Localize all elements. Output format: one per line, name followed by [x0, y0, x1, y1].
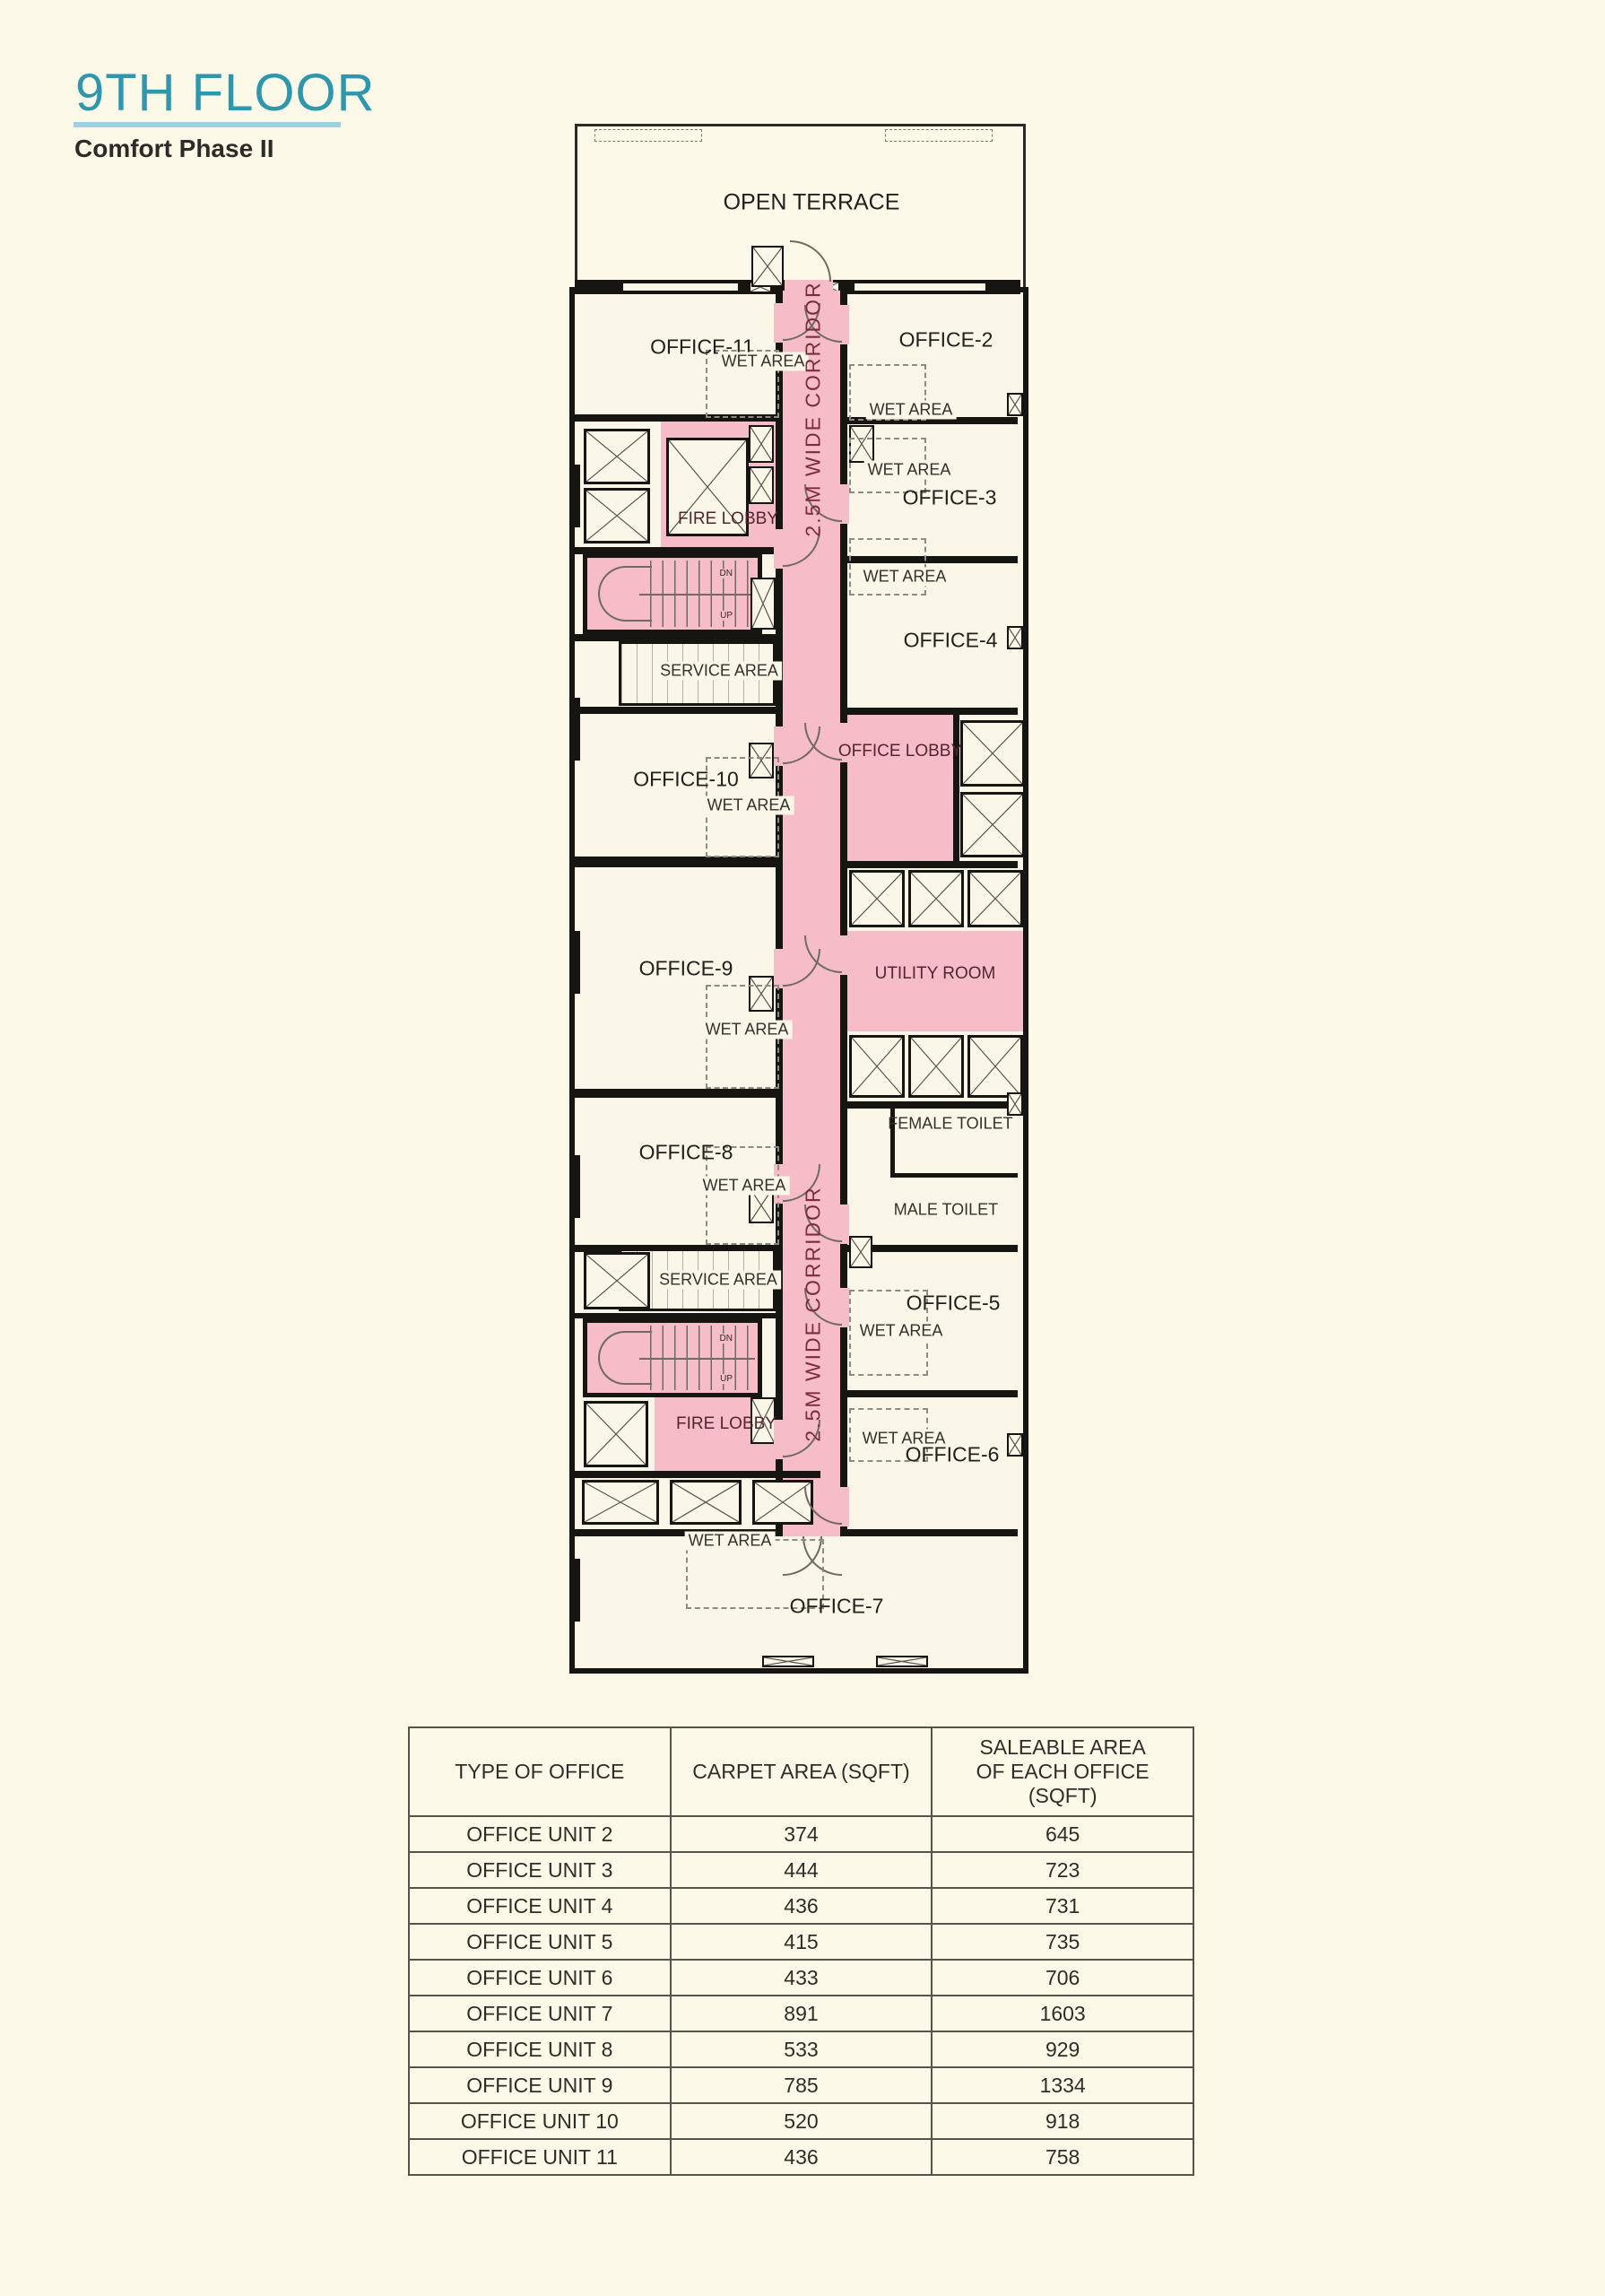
room-label-office-4: OFFICE-4 — [904, 629, 998, 653]
cell-type: OFFICE UNIT 4 — [409, 1888, 671, 1924]
lift-shaft — [849, 870, 905, 927]
lift-shaft — [584, 429, 650, 484]
lift-shaft — [908, 1035, 964, 1098]
shaft-box — [762, 1656, 814, 1667]
shaft-box — [749, 425, 774, 463]
stair-up-label: UP — [718, 611, 734, 621]
shaft-box — [849, 1236, 872, 1268]
page-title: 9TH FLOOR — [75, 63, 376, 123]
table-row: OFFICE UNIT 5 415 735 — [409, 1924, 1193, 1960]
staircase-2: DN UP — [583, 1318, 762, 1397]
stair-dn-label: DN — [718, 1334, 734, 1344]
cell-type: OFFICE UNIT 5 — [409, 1924, 671, 1960]
cell-carpet: 520 — [671, 2103, 933, 2139]
cell-saleable: 731 — [932, 1888, 1193, 1924]
cell-carpet: 436 — [671, 1888, 933, 1924]
lift-shaft — [584, 488, 650, 544]
cell-type: OFFICE UNIT 3 — [409, 1852, 671, 1888]
room-label-office-3: OFFICE-3 — [903, 486, 997, 510]
room-label-office-5: OFFICE-5 — [907, 1291, 1001, 1316]
col-header-type: TYPE OF OFFICE — [409, 1727, 671, 1816]
stair-divider — [639, 1358, 755, 1360]
cell-carpet: 785 — [671, 2067, 933, 2103]
room-label-office-10: OFFICE-10 — [633, 768, 739, 792]
lift-shaft — [584, 1252, 650, 1309]
corridor-label-top: 2.5M WIDE CORRIDOR — [802, 281, 826, 536]
wall — [840, 861, 1018, 868]
wet-area-label: WET AREA — [685, 1532, 776, 1551]
corridor-wall-left — [776, 287, 783, 1536]
wall-pier — [569, 465, 580, 527]
wall — [840, 1101, 1018, 1109]
room-label-office-8: OFFICE-8 — [639, 1141, 733, 1165]
wall — [840, 708, 1018, 715]
wall-pier — [569, 698, 580, 761]
wall — [953, 715, 959, 861]
wall — [890, 1173, 1018, 1178]
cell-carpet: 436 — [671, 2139, 933, 2175]
shaft-box — [749, 466, 774, 504]
cell-saleable: 1603 — [932, 1996, 1193, 2031]
shaft-box — [876, 1656, 928, 1667]
lift-shaft — [582, 1480, 659, 1525]
table-header-row: TYPE OF OFFICE CARPET AREA (SQFT) SALEAB… — [409, 1727, 1193, 1816]
col-header-carpet: CARPET AREA (SQFT) — [671, 1727, 933, 1816]
wet-area-label: WET AREA — [866, 401, 957, 420]
page-subtitle: Comfort Phase II — [74, 135, 273, 163]
wall-pier — [569, 931, 580, 994]
cell-carpet: 444 — [671, 1852, 933, 1888]
room-label-office-7: OFFICE-7 — [790, 1595, 884, 1619]
table-row: OFFICE UNIT 11 436 758 — [409, 2139, 1193, 2175]
shaft-box — [750, 578, 776, 630]
cell-saleable: 758 — [932, 2139, 1193, 2175]
lift-shaft — [670, 1480, 742, 1525]
shaft-box — [1007, 393, 1023, 416]
page: { "header": { "title": "9TH FLOOR", "sub… — [0, 0, 1605, 2296]
wall — [569, 1471, 820, 1478]
room-label-office-2: OFFICE-2 — [899, 328, 993, 352]
room-label-service-area-1: SERVICE AREA — [656, 662, 782, 681]
cell-carpet: 533 — [671, 2031, 933, 2067]
wall — [569, 1089, 776, 1098]
wall-pier — [569, 1559, 580, 1622]
table-row: OFFICE UNIT 3 444 723 — [409, 1852, 1193, 1888]
cell-type: OFFICE UNIT 11 — [409, 2139, 671, 2175]
lift-shaft — [584, 1401, 648, 1467]
table-row: OFFICE UNIT 9 785 1334 — [409, 2067, 1193, 2103]
wet-area-label: WET AREA — [718, 352, 809, 371]
room-label-fire-lobby-2: FIRE LOBBY — [676, 1414, 776, 1434]
cell-saleable: 918 — [932, 2103, 1193, 2139]
table-row: OFFICE UNIT 4 436 731 — [409, 1888, 1193, 1924]
table-row: OFFICE UNIT 2 374 645 — [409, 1816, 1193, 1852]
room-label-open-terrace: OPEN TERRACE — [724, 190, 900, 216]
cell-carpet: 374 — [671, 1816, 933, 1852]
table-row: OFFICE UNIT 6 433 706 — [409, 1960, 1193, 1996]
room-label-office-6: OFFICE-6 — [906, 1443, 1000, 1467]
area-table: TYPE OF OFFICE CARPET AREA (SQFT) SALEAB… — [408, 1726, 1194, 2176]
cell-type: OFFICE UNIT 10 — [409, 2103, 671, 2139]
stair-up-label: UP — [718, 1374, 734, 1384]
cell-saleable: 735 — [932, 1924, 1193, 1960]
window-slot — [855, 283, 985, 291]
cell-type: OFFICE UNIT 8 — [409, 2031, 671, 2067]
cell-saleable: 1334 — [932, 2067, 1193, 2103]
staircase-1: DN UP — [583, 553, 762, 634]
cell-type: OFFICE UNIT 9 — [409, 2067, 671, 2103]
cell-saleable: 645 — [932, 1816, 1193, 1852]
wet-area-label: WET AREA — [699, 1177, 790, 1196]
room-label-male-toilet: MALE TOILET — [894, 1201, 998, 1220]
cell-saleable: 706 — [932, 1960, 1193, 1996]
title-underline — [74, 122, 341, 127]
cell-saleable: 723 — [932, 1852, 1193, 1888]
planter-left — [594, 129, 702, 142]
room-label-service-area-2: SERVICE AREA — [655, 1271, 781, 1290]
room-label-female-toilet: FEMALE TOILET — [888, 1115, 1012, 1134]
lift-shaft — [967, 1035, 1023, 1098]
wall — [569, 634, 776, 641]
wall — [840, 1390, 1018, 1397]
cell-carpet: 891 — [671, 1996, 933, 2031]
window-slot — [623, 283, 738, 291]
corridor-wall-right — [840, 287, 847, 1536]
stair-dn-label: DN — [718, 569, 734, 578]
cell-type: OFFICE UNIT 6 — [409, 1960, 671, 1996]
floor-plan: DN UP DN UP — [569, 124, 1028, 1670]
col-header-saleable: SALEABLE AREA OF EACH OFFICE (SQFT) — [932, 1727, 1193, 1816]
room-label-fire-lobby-1: FIRE LOBBY — [678, 509, 778, 529]
room-label-utility-room: UTILITY ROOM — [875, 964, 996, 984]
wet-area-label: WET AREA — [856, 1322, 947, 1341]
wet-area-label: WET AREA — [704, 796, 794, 815]
wet-area-label: WET AREA — [702, 1021, 793, 1039]
cell-type: OFFICE UNIT 2 — [409, 1816, 671, 1852]
table-row: OFFICE UNIT 8 533 929 — [409, 2031, 1193, 2067]
planter-right — [885, 129, 993, 142]
office-lobby — [847, 715, 953, 861]
shaft-box — [1007, 626, 1023, 649]
wet-area-label: WET AREA — [860, 568, 950, 587]
cell-carpet: 433 — [671, 1960, 933, 1996]
wall — [840, 1529, 1018, 1536]
corridor-label-bottom: 2.5M WIDE CORRIDOR — [802, 1186, 826, 1441]
cell-carpet: 415 — [671, 1924, 933, 1960]
lift-shaft — [960, 792, 1025, 857]
wall — [569, 857, 776, 867]
table-row: OFFICE UNIT 7 891 1603 — [409, 1996, 1193, 2031]
shaft-box — [751, 246, 784, 287]
lift-shaft — [960, 720, 1025, 787]
cell-saleable: 929 — [932, 2031, 1193, 2067]
table-row: OFFICE UNIT 10 520 918 — [409, 2103, 1193, 2139]
stair-divider — [639, 594, 755, 596]
shaft-box — [1007, 1092, 1023, 1116]
wet-area-label: WET AREA — [864, 461, 955, 480]
lift-shaft — [908, 870, 964, 927]
wall — [569, 707, 776, 714]
room-label-office-9: OFFICE-9 — [639, 957, 733, 981]
lift-shaft — [967, 870, 1023, 927]
wall-pier — [569, 1155, 580, 1218]
room-label-office-lobby: OFFICE LOBBY — [838, 742, 962, 761]
lift-shaft — [849, 1035, 905, 1098]
cell-type: OFFICE UNIT 7 — [409, 1996, 671, 2031]
shaft-box — [1007, 1433, 1023, 1457]
